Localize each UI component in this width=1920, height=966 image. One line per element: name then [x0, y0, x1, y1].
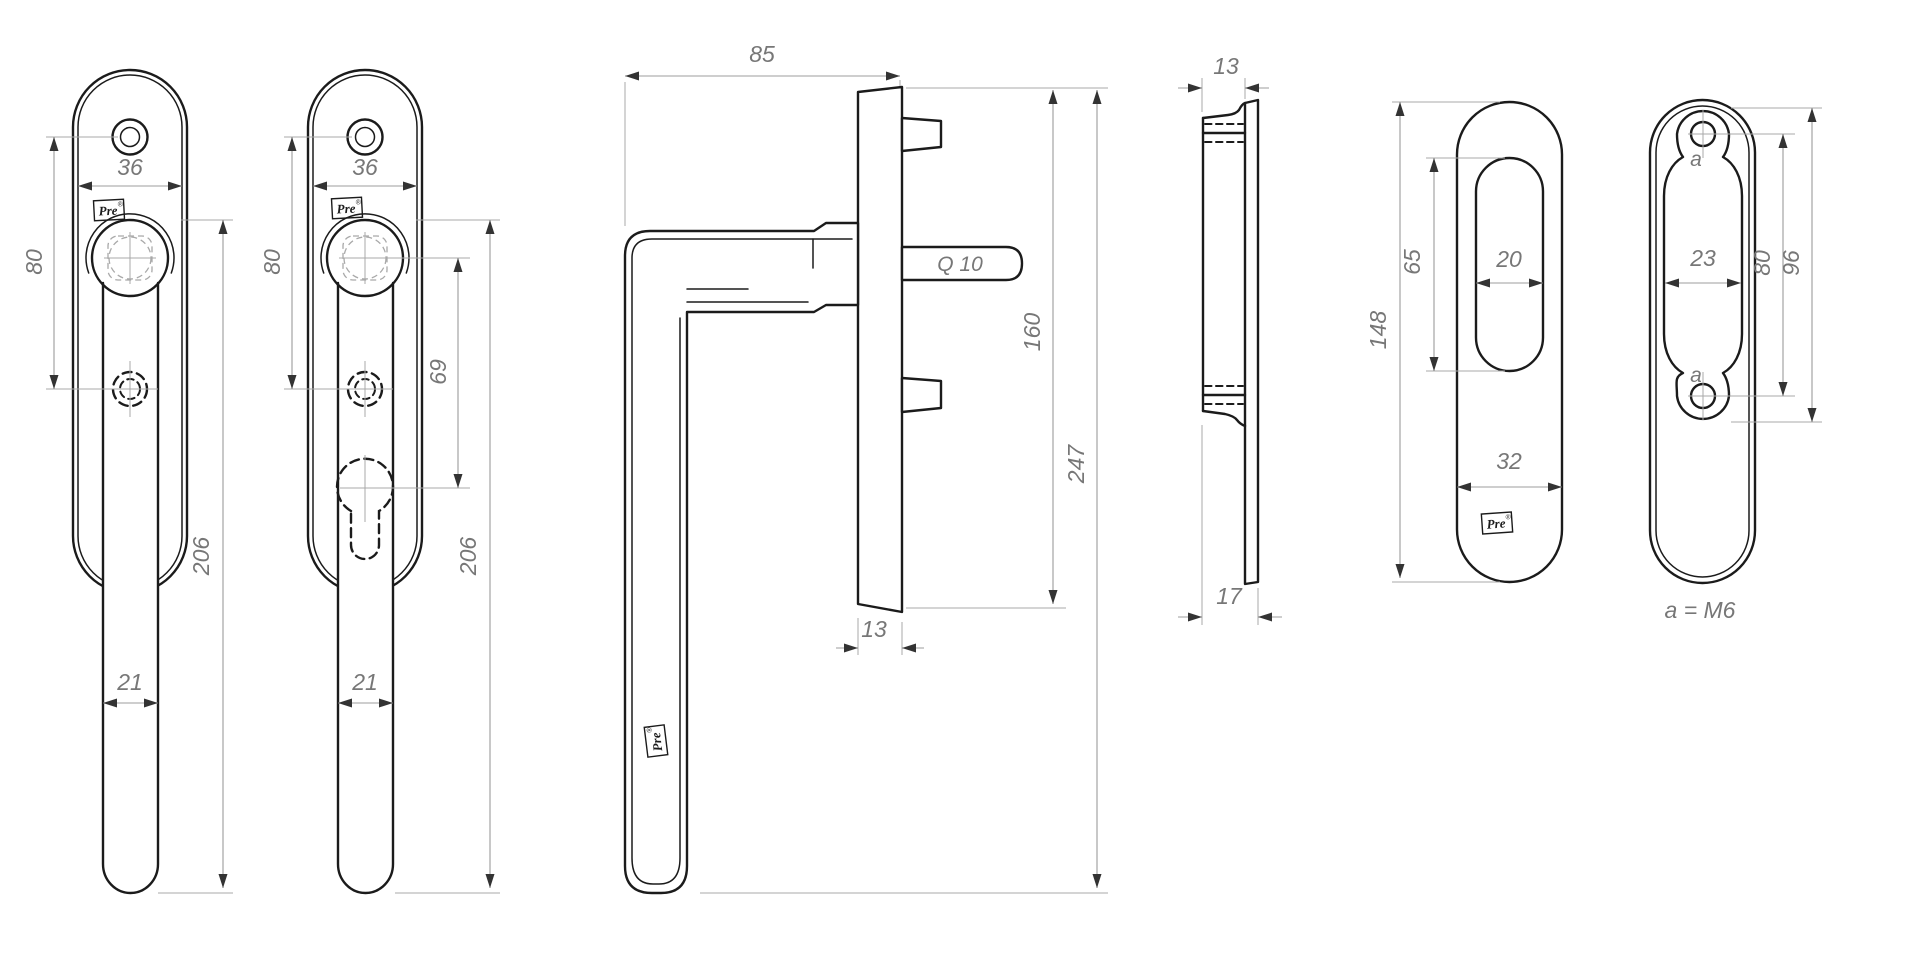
- plate-top-edge: [1203, 103, 1245, 118]
- backplate-side: [858, 87, 902, 612]
- hole-label-top: a: [1690, 148, 1702, 171]
- lever-fill: [338, 260, 393, 893]
- hole-label-bottom: a: [1690, 364, 1702, 387]
- view-plate-edge-profile: 13 17: [1178, 53, 1282, 625]
- arrowhead: [1396, 102, 1405, 116]
- view-handle-front-cylinder: 36 Pre ®: [259, 70, 500, 893]
- arrowhead: [1188, 84, 1202, 93]
- arrowhead: [1779, 134, 1788, 148]
- dim-plate-height: 160: [906, 88, 1108, 608]
- thread-note: a = M6: [1665, 597, 1736, 623]
- arrowhead: [844, 644, 858, 653]
- logo-text: Pre: [336, 201, 356, 217]
- brand-logo: Pre ®: [1481, 512, 1512, 534]
- plate-bottom-edge: [1203, 411, 1245, 426]
- dim-label: 13: [861, 616, 887, 642]
- view-handle-side: Q 10 Pre ® 85 160: [625, 41, 1108, 893]
- cover-bar: [1245, 100, 1258, 584]
- arrowhead: [1430, 158, 1439, 172]
- brand-logo: Pre ®: [331, 197, 362, 219]
- dim-label: 23: [1689, 245, 1716, 271]
- dim-label: 206: [188, 537, 214, 577]
- view-cover-plate-back: a a 23 80 96 a = M6: [1650, 100, 1822, 623]
- arrowhead: [886, 72, 900, 81]
- dim-label: 80: [21, 249, 47, 275]
- arrowhead: [1808, 408, 1817, 422]
- dim-label: 20: [1495, 246, 1522, 272]
- dim-total-height: 247: [700, 90, 1108, 893]
- arrowhead: [1430, 357, 1439, 371]
- arrowhead: [1779, 382, 1788, 396]
- arrowhead: [1049, 90, 1058, 104]
- dim-plate-width-side: 13: [836, 616, 924, 655]
- dim-label: 160: [1019, 313, 1045, 352]
- arrowhead: [288, 375, 297, 389]
- arrowhead: [625, 72, 639, 81]
- plate-contour: [1457, 102, 1562, 582]
- dim-label: 80: [1749, 250, 1775, 276]
- dim-label: 148: [1365, 311, 1391, 350]
- brand-logo: Pre ®: [93, 199, 124, 221]
- brand-logo: Pre ®: [644, 725, 668, 757]
- logo-text: Pre: [648, 731, 665, 752]
- dim-label: 65: [1399, 249, 1425, 275]
- fixing-lug-top: [902, 118, 941, 151]
- view-handle-front-plain: 36 Pre ®: [21, 70, 233, 893]
- fixing-lug-bottom: [902, 378, 941, 412]
- dim-label: 21: [351, 669, 378, 695]
- arrowhead: [50, 137, 59, 151]
- dim-label: 17: [1216, 583, 1243, 609]
- spindle-label: Q 10: [937, 253, 983, 276]
- technical-drawing-sheet: 36 Pre ®: [0, 0, 1920, 966]
- dim-label: 96: [1778, 250, 1804, 276]
- arrowhead: [486, 874, 495, 888]
- dim-label: 13: [1213, 53, 1239, 79]
- arrowhead: [219, 220, 228, 234]
- dim-label: 36: [117, 154, 143, 180]
- arrowhead: [1093, 90, 1102, 104]
- arrowhead: [1258, 613, 1272, 622]
- plate-contour: [1650, 100, 1755, 583]
- arrowhead: [1245, 84, 1259, 93]
- arrowhead: [454, 474, 463, 488]
- logo-text: Pre: [1486, 515, 1506, 531]
- dim-label: 247: [1063, 444, 1089, 485]
- dim-label: 85: [749, 41, 775, 67]
- lever-side-contour: [625, 223, 858, 893]
- arrowhead: [1396, 564, 1405, 578]
- lever-fill: [103, 260, 158, 893]
- dim-label: 21: [116, 669, 143, 695]
- arrowhead: [486, 220, 495, 234]
- arrowhead: [50, 375, 59, 389]
- arrowhead: [1049, 590, 1058, 604]
- arrowhead: [219, 874, 228, 888]
- arrowhead: [454, 258, 463, 272]
- view-cover-plate-front: 148 65 20 32 Pre ®: [1365, 102, 1562, 582]
- arrowhead: [1093, 874, 1102, 888]
- dim-thickness-total: 17: [1178, 425, 1282, 625]
- arrowhead: [1188, 613, 1202, 622]
- dim-label: 206: [455, 537, 481, 577]
- arrowhead: [1808, 108, 1817, 122]
- dim-label: 69: [425, 359, 451, 385]
- dim-label: 36: [352, 154, 378, 180]
- drawing-svg: 36 Pre ®: [0, 0, 1920, 966]
- dim-label: 80: [259, 249, 285, 275]
- arrowhead: [288, 137, 297, 151]
- arrowhead: [902, 644, 916, 653]
- dim-label: 32: [1496, 448, 1522, 474]
